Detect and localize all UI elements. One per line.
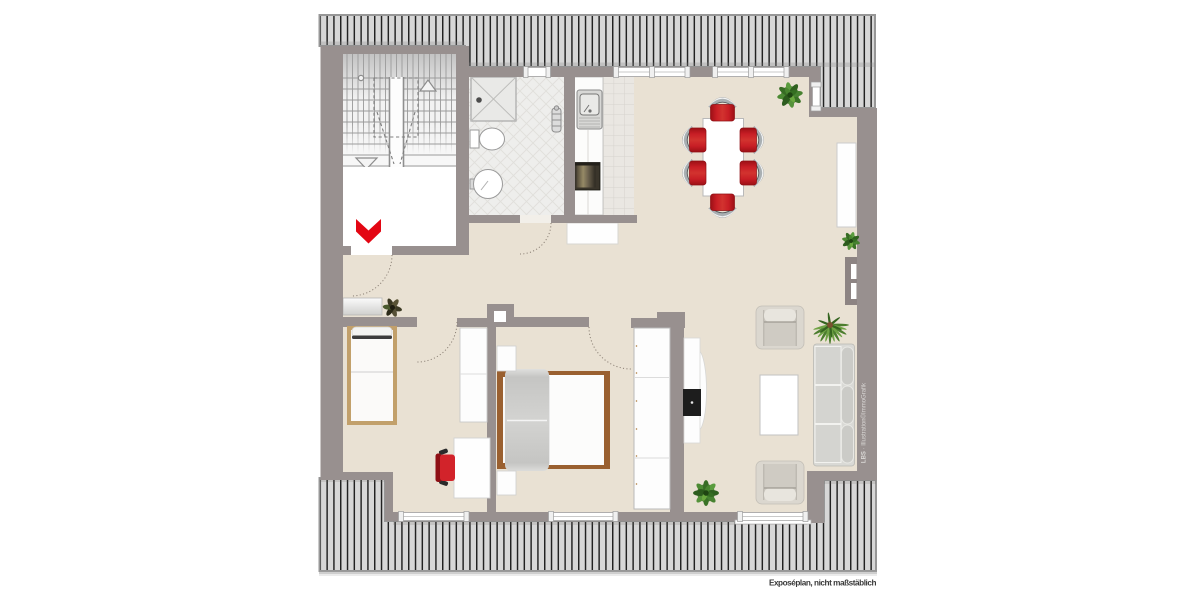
svg-text:Exposéplan, nicht maßstäblich: Exposéplan, nicht maßstäblich [769, 579, 877, 588]
svg-text:LBS · Illustration©ImmoGrafik: LBS · Illustration©ImmoGrafik [861, 382, 868, 463]
